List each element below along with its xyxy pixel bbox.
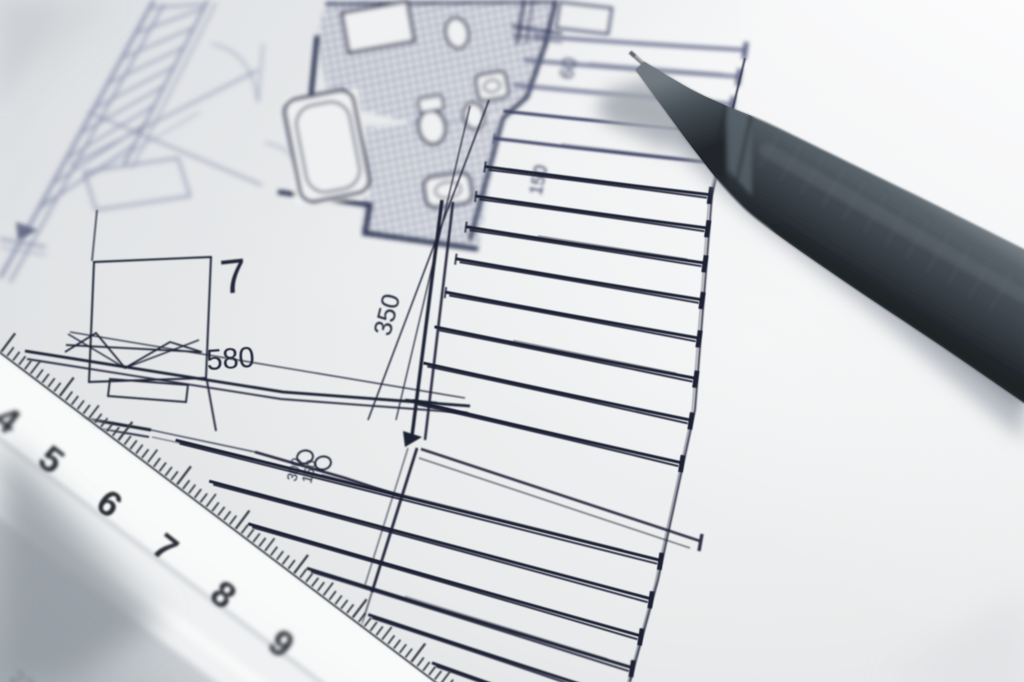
- svg-text:580: 580: [205, 342, 256, 377]
- svg-text:60: 60: [556, 56, 581, 81]
- svg-text:7: 7: [218, 249, 250, 305]
